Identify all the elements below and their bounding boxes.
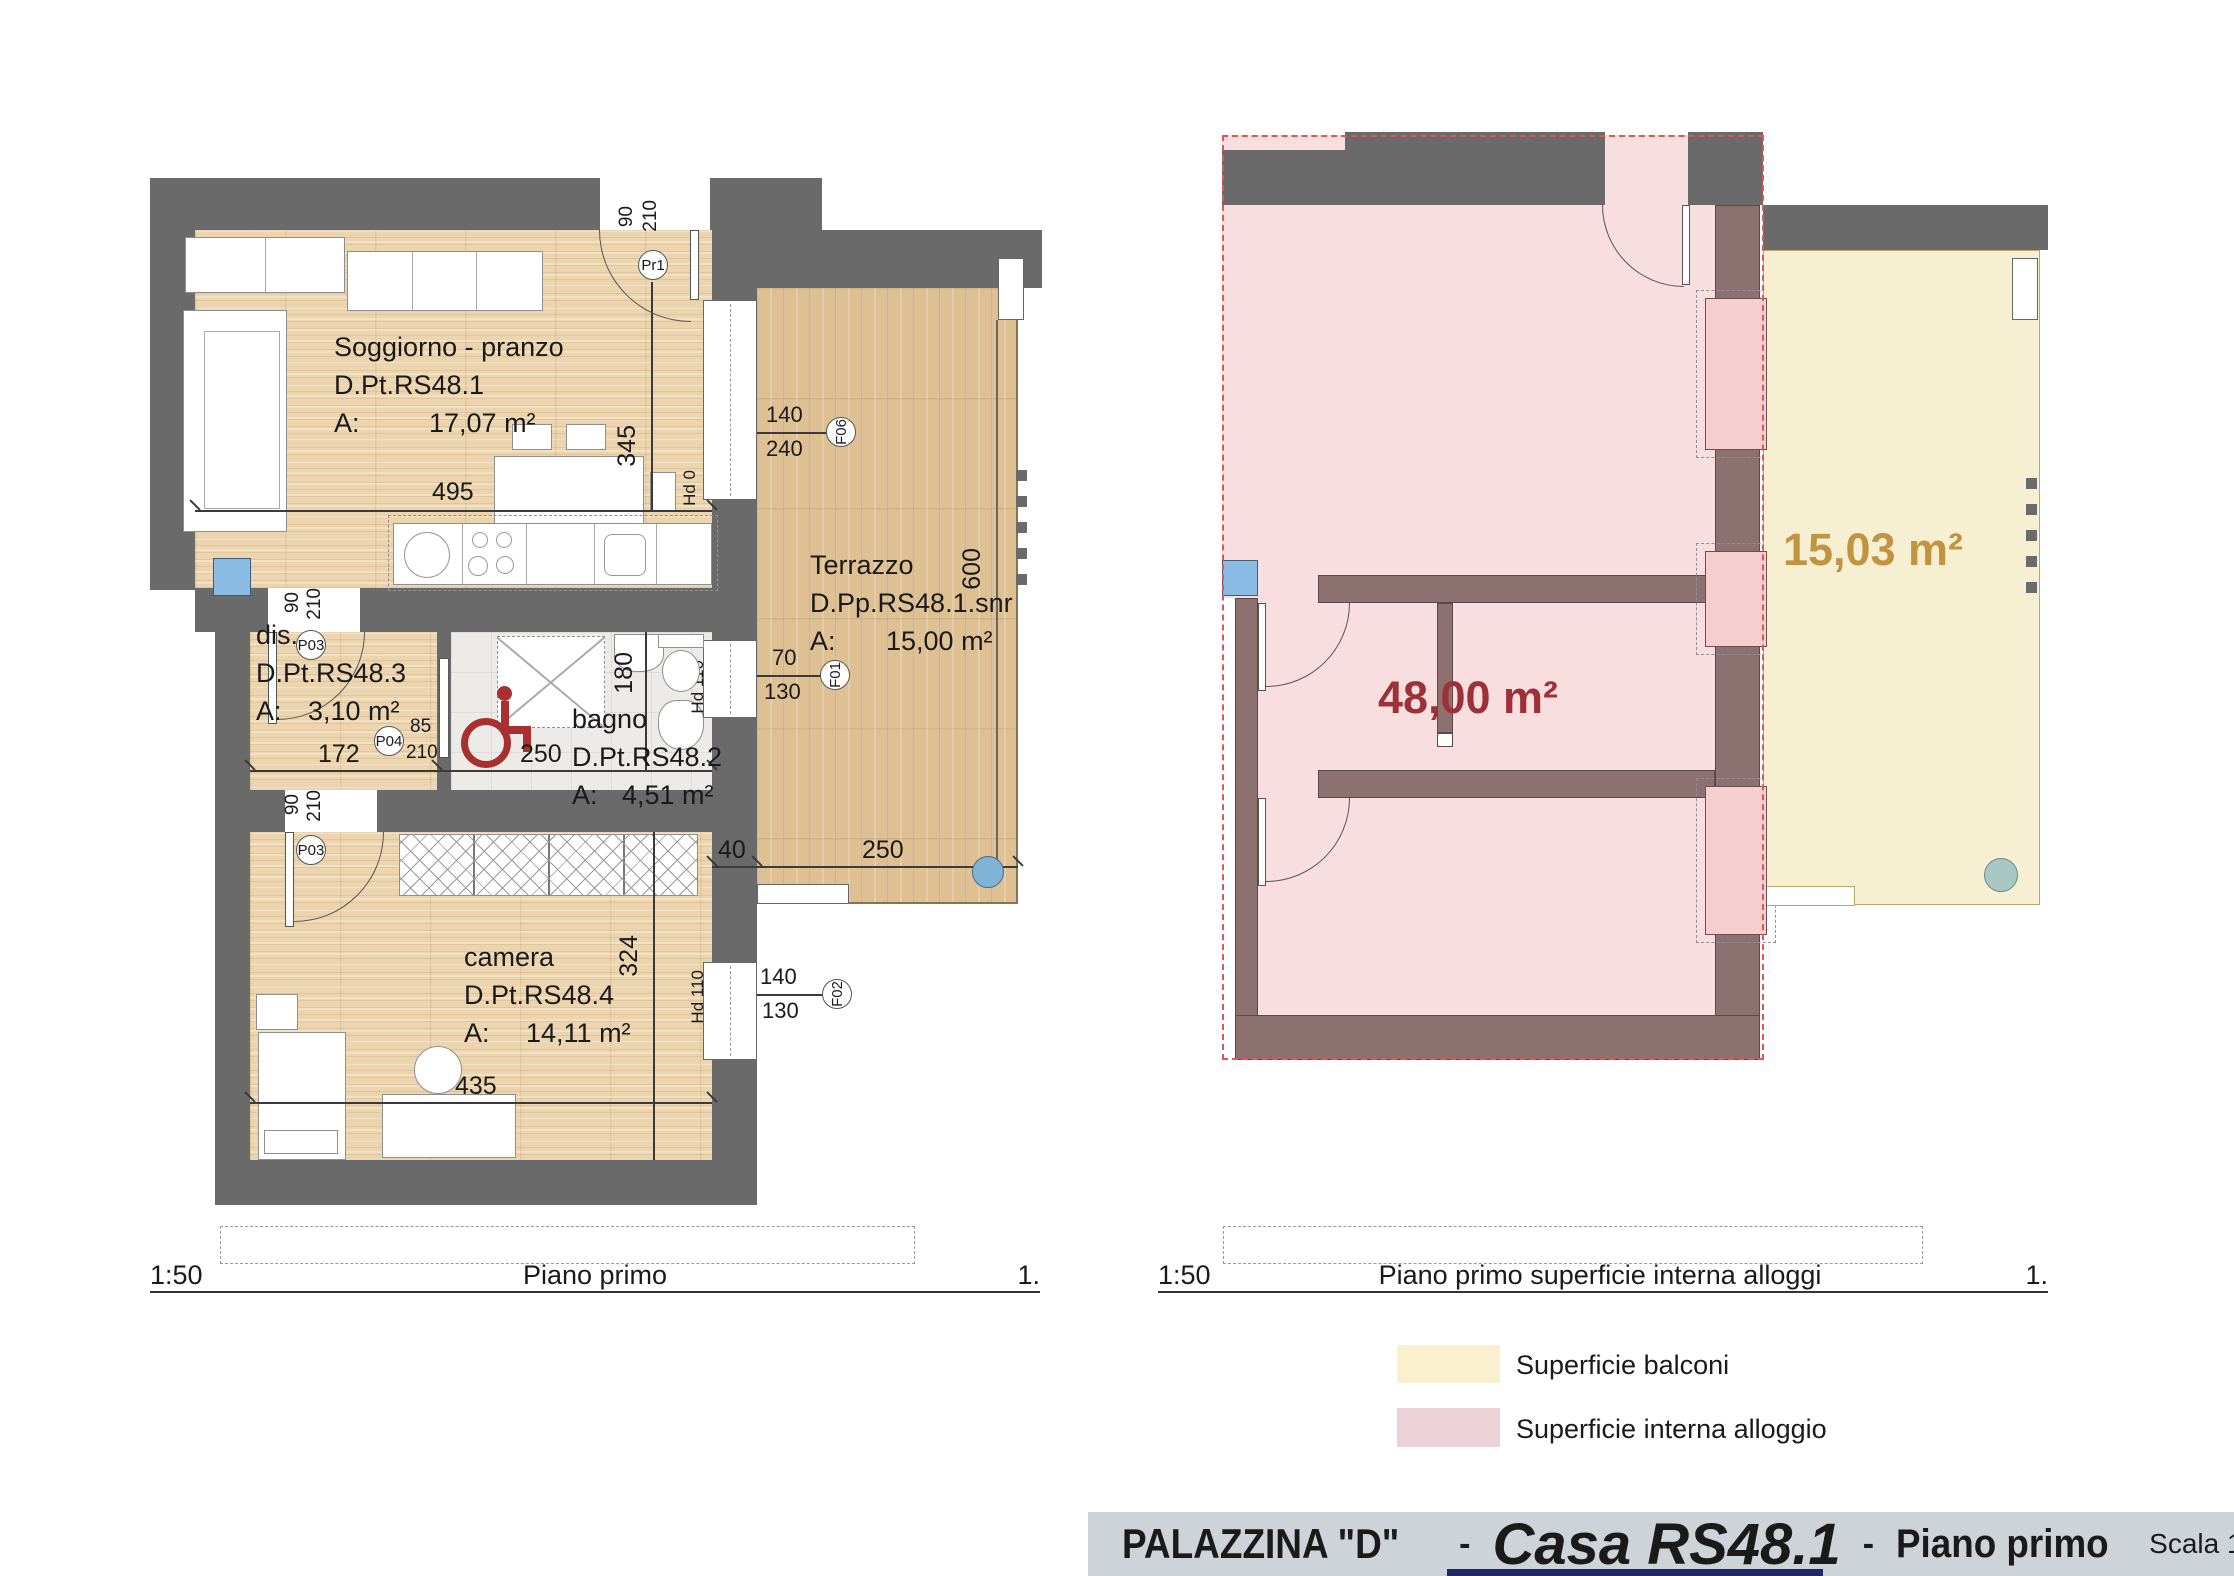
kitchen-counter bbox=[393, 523, 712, 585]
caption-right: Piano primo superficie interna alloggi bbox=[1350, 1260, 1850, 1291]
balcony-area bbox=[1763, 250, 2040, 905]
door-dim: 210 bbox=[640, 200, 662, 232]
dim-living-height: 345 bbox=[613, 425, 642, 467]
rp-wall-balcony-top bbox=[1763, 205, 2048, 250]
sideboard bbox=[185, 237, 345, 293]
window-marker-f02: F02 bbox=[822, 979, 852, 1009]
scale-label-right: 1:50 bbox=[1158, 1260, 1211, 1291]
door-dim: 210 bbox=[304, 790, 326, 822]
area-label: A: bbox=[256, 692, 308, 730]
print-area-outline bbox=[1223, 1226, 1923, 1264]
room-name: camera bbox=[464, 938, 631, 976]
door-dim: 90 bbox=[616, 206, 638, 227]
window-id: F06 bbox=[833, 419, 850, 445]
railing-tick bbox=[1016, 496, 1027, 507]
caption-rule bbox=[150, 1291, 1040, 1293]
bed-pillow bbox=[264, 1130, 338, 1154]
dim-line bbox=[195, 510, 712, 512]
title-bar: PALAZZINA "D" - Casa RS48.1 - Piano prim… bbox=[1088, 1512, 2234, 1576]
window-leader bbox=[757, 675, 821, 677]
dim-terrace-height: 600 bbox=[958, 548, 987, 590]
railing-tick bbox=[1016, 470, 1027, 481]
chair bbox=[566, 424, 606, 450]
railing-tick bbox=[2026, 478, 2037, 489]
railing-tick bbox=[2026, 530, 2037, 541]
window-f02 bbox=[703, 962, 757, 1060]
divider bbox=[265, 238, 266, 292]
door-dim: 85 bbox=[410, 716, 431, 738]
wall-right-c bbox=[712, 588, 757, 640]
toilet-bowl bbox=[662, 650, 700, 692]
window-glass-line bbox=[730, 304, 731, 496]
wall-right-a bbox=[712, 288, 757, 300]
area-label: A: bbox=[810, 622, 886, 660]
room-code: D.Pt.RS48.2 bbox=[572, 738, 722, 776]
dim-terrace-wall: 40 bbox=[718, 836, 746, 865]
window-dim: 240 bbox=[766, 436, 803, 462]
area-value: 3,10 m² bbox=[308, 696, 400, 726]
toilet bbox=[658, 634, 704, 692]
balcony-step bbox=[1763, 886, 1855, 906]
balcony-area-label: 15,03 m² bbox=[1768, 524, 1978, 576]
window-dim: 140 bbox=[766, 402, 803, 428]
title-building: PALAZZINA "D" bbox=[1122, 1520, 1399, 1568]
divider bbox=[594, 524, 595, 584]
door-dim: 210 bbox=[406, 742, 438, 764]
window-dim: 130 bbox=[764, 679, 801, 705]
area-label: A: bbox=[572, 776, 622, 814]
window-id: F01 bbox=[827, 662, 844, 688]
legend-swatch-balcony bbox=[1397, 1345, 1500, 1383]
room-name: Soggiorno - pranzo bbox=[334, 328, 564, 366]
wall-bottom bbox=[215, 1160, 757, 1205]
legend-label-balcony: Superficie balconi bbox=[1516, 1350, 1729, 1381]
divider bbox=[412, 252, 413, 310]
window-glass-line bbox=[730, 644, 731, 714]
title-floor: Piano primo bbox=[1896, 1522, 2109, 1567]
room-area: A:14,11 m² bbox=[464, 1014, 631, 1052]
floor-plan-sheet: Soggiorno - pranzo D.Pt.RS48.1 A:17,07 m… bbox=[0, 0, 2234, 1576]
window-leader bbox=[757, 994, 823, 996]
railing-tick bbox=[1016, 574, 1027, 585]
divider bbox=[476, 252, 477, 310]
area-value: 15,00 m² bbox=[886, 626, 993, 656]
caption-rule bbox=[1158, 1291, 2048, 1293]
wall-left-lower bbox=[215, 596, 250, 1205]
title-house: Casa RS48.1 bbox=[1492, 1511, 1840, 1576]
title-scale: Scala 1:50 bbox=[2149, 1528, 2234, 1560]
burner-icon bbox=[468, 556, 488, 576]
door-dim: 90 bbox=[282, 794, 304, 815]
dim-line bbox=[250, 1102, 712, 1104]
chair bbox=[650, 472, 676, 512]
dim-line bbox=[653, 832, 655, 1160]
room-area: A:4,51 m² bbox=[572, 776, 722, 814]
window-marker-f06: F06 bbox=[826, 417, 856, 447]
room-label-bath: bagno D.Pt.RS48.2 A:4,51 m² bbox=[572, 700, 722, 814]
terrace-corner-window bbox=[998, 258, 1024, 320]
washer-drum-icon bbox=[404, 532, 450, 578]
title-separator: - bbox=[1863, 1525, 1874, 1564]
door-dim: 210 bbox=[304, 588, 326, 620]
legend-swatch-interior bbox=[1397, 1408, 1500, 1447]
wall-right-e bbox=[712, 1060, 757, 1160]
title-separator: - bbox=[1459, 1525, 1470, 1564]
room-area: A:3,10 m² bbox=[256, 692, 406, 730]
sink-icon bbox=[604, 534, 646, 576]
window-dim: 70 bbox=[772, 645, 796, 671]
divider bbox=[462, 524, 463, 584]
room-area: A:17,07 m² bbox=[334, 404, 564, 442]
nightstand bbox=[256, 994, 298, 1030]
dim-bath-width: 250 bbox=[520, 740, 562, 769]
bath-door-leaf bbox=[439, 658, 449, 758]
divider bbox=[656, 524, 657, 584]
sofa bbox=[183, 310, 287, 532]
window-dim: 140 bbox=[760, 964, 797, 990]
wheelchair-head bbox=[497, 686, 512, 701]
burner-icon bbox=[496, 532, 512, 548]
entry-door-leaf bbox=[690, 230, 699, 300]
wall-mid1-b bbox=[360, 588, 712, 632]
scale-label-left: 1:50 bbox=[150, 1260, 203, 1291]
wall-top-right bbox=[710, 178, 822, 230]
dim-line bbox=[651, 282, 653, 510]
railing-tick bbox=[2026, 556, 2037, 567]
burner-icon bbox=[472, 532, 488, 548]
dim-terrace-width: 250 bbox=[862, 836, 904, 865]
area-value: 17,07 m² bbox=[429, 408, 536, 438]
railing-tick bbox=[2026, 504, 2037, 515]
window-f06 bbox=[703, 300, 757, 500]
door-marker-p04-bath: P04 bbox=[374, 726, 404, 756]
window-glass-line bbox=[730, 966, 731, 1056]
room-code: D.Pt.RS48.3 bbox=[256, 654, 406, 692]
area-label: A: bbox=[464, 1014, 526, 1052]
window-dim: 130 bbox=[762, 998, 799, 1024]
divider bbox=[526, 524, 527, 584]
room-name: dis. bbox=[256, 616, 406, 654]
window-id: F02 bbox=[829, 981, 846, 1007]
title-bar-accent bbox=[1447, 1569, 1823, 1576]
door-marker-pr1: Pr1 bbox=[638, 250, 668, 280]
door-dim: 90 bbox=[282, 592, 304, 613]
toilet-tank bbox=[658, 634, 704, 648]
sofa-seat bbox=[204, 331, 280, 509]
height-marker-hd0: Hd 0 bbox=[680, 470, 700, 506]
burner-icon bbox=[496, 556, 514, 574]
dim-bath-height: 180 bbox=[610, 652, 639, 694]
balcony-drain bbox=[1984, 858, 2018, 892]
caption-left: Piano primo bbox=[395, 1260, 795, 1291]
room-label-hall: dis. D.Pt.RS48.3 A:3,10 m² bbox=[256, 616, 406, 730]
room-code: D.Pt.RS48.4 bbox=[464, 976, 631, 1014]
window-leader bbox=[757, 432, 827, 434]
area-value: 14,11 m² bbox=[526, 1018, 631, 1048]
terrace-step bbox=[757, 884, 849, 904]
room-name: bagno bbox=[572, 700, 722, 738]
room-label-living: Soggiorno - pranzo D.Pt.RS48.1 A:17,07 m… bbox=[334, 328, 564, 442]
railing-tick bbox=[2026, 582, 2037, 593]
bedroom-door-leaf bbox=[285, 832, 294, 927]
dim-bedroom-width: 435 bbox=[455, 1072, 497, 1101]
room-area: A:15,00 m² bbox=[810, 622, 1013, 660]
interior-area-label: 48,00 m² bbox=[1363, 672, 1573, 724]
railing-tick bbox=[1016, 548, 1027, 559]
sheet-number-left: 1. bbox=[1005, 1260, 1040, 1291]
dim-bedroom-height: 324 bbox=[615, 935, 644, 977]
riser-marker bbox=[213, 558, 251, 596]
area-value: 4,51 m² bbox=[622, 780, 714, 810]
area-label: A: bbox=[334, 404, 429, 442]
window-marker-f01: F01 bbox=[820, 660, 850, 690]
terrace-drain bbox=[972, 856, 1004, 888]
room-label-bedroom: camera D.Pt.RS48.4 A:14,11 m² bbox=[464, 938, 631, 1052]
wall-terrace-top bbox=[712, 230, 1042, 288]
dim-hall-width: 172 bbox=[318, 740, 360, 769]
legend-label-interior: Superficie interna alloggio bbox=[1516, 1414, 1827, 1445]
wall-right-b bbox=[712, 500, 757, 588]
balcony-corner-window bbox=[2012, 258, 2038, 320]
cabinet-row bbox=[347, 251, 543, 311]
print-area-outline bbox=[220, 1226, 915, 1264]
dim-living-width: 495 bbox=[432, 478, 474, 507]
room-code: D.Pt.RS48.1 bbox=[334, 366, 564, 404]
apartment-outline bbox=[1222, 135, 1764, 1060]
wall-mid2-a bbox=[215, 790, 285, 832]
sheet-number-right: 1. bbox=[2013, 1260, 2048, 1291]
door-marker-p03-bedroom: P03 bbox=[296, 835, 326, 865]
wall-top-left bbox=[150, 178, 600, 230]
railing-tick bbox=[1016, 522, 1027, 533]
